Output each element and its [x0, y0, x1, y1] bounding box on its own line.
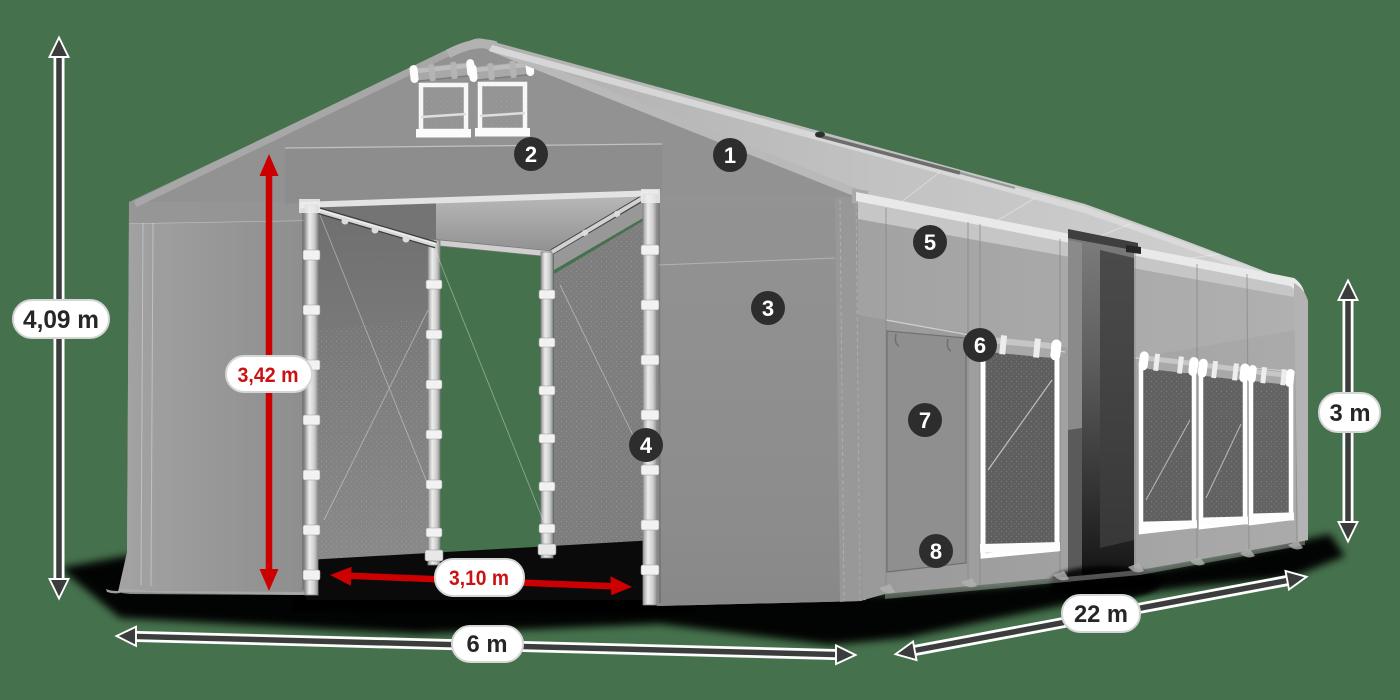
svg-text:7: 7	[919, 408, 931, 433]
svg-text:3 m: 3 m	[1330, 400, 1371, 427]
svg-text:6: 6	[974, 333, 986, 358]
svg-text:22 m: 22 m	[1074, 601, 1128, 628]
svg-text:3: 3	[762, 296, 774, 321]
svg-text:2: 2	[525, 142, 537, 167]
svg-text:6 m: 6 m	[467, 631, 508, 658]
svg-text:8: 8	[930, 539, 942, 564]
svg-text:3,42 m: 3,42 m	[238, 364, 299, 387]
svg-text:3,10 m: 3,10 m	[449, 567, 509, 590]
svg-text:4: 4	[640, 433, 653, 458]
svg-text:5: 5	[924, 230, 936, 255]
svg-text:4,09 m: 4,09 m	[23, 306, 99, 334]
svg-text:1: 1	[724, 143, 736, 168]
